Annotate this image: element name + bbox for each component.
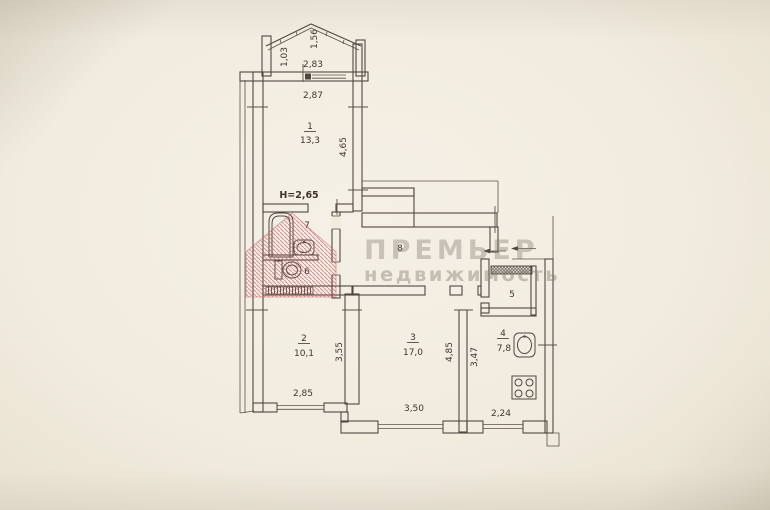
room-4-number: 4 xyxy=(500,329,506,339)
dim-room1-length: 4,65 xyxy=(339,137,349,157)
ceiling-height-note: H=2,65 xyxy=(279,190,318,201)
stove-icon xyxy=(512,376,536,399)
balcony-door-leaf xyxy=(305,74,311,80)
dim-balcony-depth: 1,03 xyxy=(280,47,290,67)
dim-balcony-width: 2,83 xyxy=(303,60,323,70)
room-3-area: 17,0 xyxy=(403,348,423,358)
dim-balcony-side: 1,56 xyxy=(310,29,320,49)
room-5-number: 5 xyxy=(509,290,515,300)
dim-room2-length: 3,55 xyxy=(335,342,345,362)
kitchen-sink-icon xyxy=(514,333,535,357)
dim-kitchen-width: 2,24 xyxy=(491,409,511,419)
room-1-number: 1 xyxy=(307,122,313,132)
room-2-area: 10,1 xyxy=(294,349,314,359)
floor-plan-drawing: 2,83 2,87 1,03 1,56 1 13,3 4,65 H=2,65 7… xyxy=(0,0,770,510)
dim-room3-width: 3,50 xyxy=(404,404,424,414)
labels: 2,83 2,87 1,03 1,56 1 13,3 4,65 H=2,65 7… xyxy=(279,29,515,419)
room-2-number: 2 xyxy=(301,334,307,344)
dim-room2-width: 2,85 xyxy=(293,389,313,399)
floor-plan-photo: 2,83 2,87 1,03 1,56 1 13,3 4,65 H=2,65 7… xyxy=(0,0,770,510)
room-3-number: 3 xyxy=(410,333,416,343)
room-1-area: 13,3 xyxy=(300,136,320,146)
dim-room3-length: 4,85 xyxy=(445,342,455,362)
dim-room1-width: 2,87 xyxy=(303,91,323,101)
room-4-area: 7,8 xyxy=(497,344,512,354)
watermark-line2: недвижимость xyxy=(364,263,560,286)
watermark-brand: ПРЕМЬЕР недвижимость xyxy=(364,235,560,286)
watermark-line1: ПРЕМЬЕР xyxy=(364,235,539,266)
premier-logo-house-icon xyxy=(246,213,336,297)
dim-kitchen-length: 3,47 xyxy=(470,347,480,367)
